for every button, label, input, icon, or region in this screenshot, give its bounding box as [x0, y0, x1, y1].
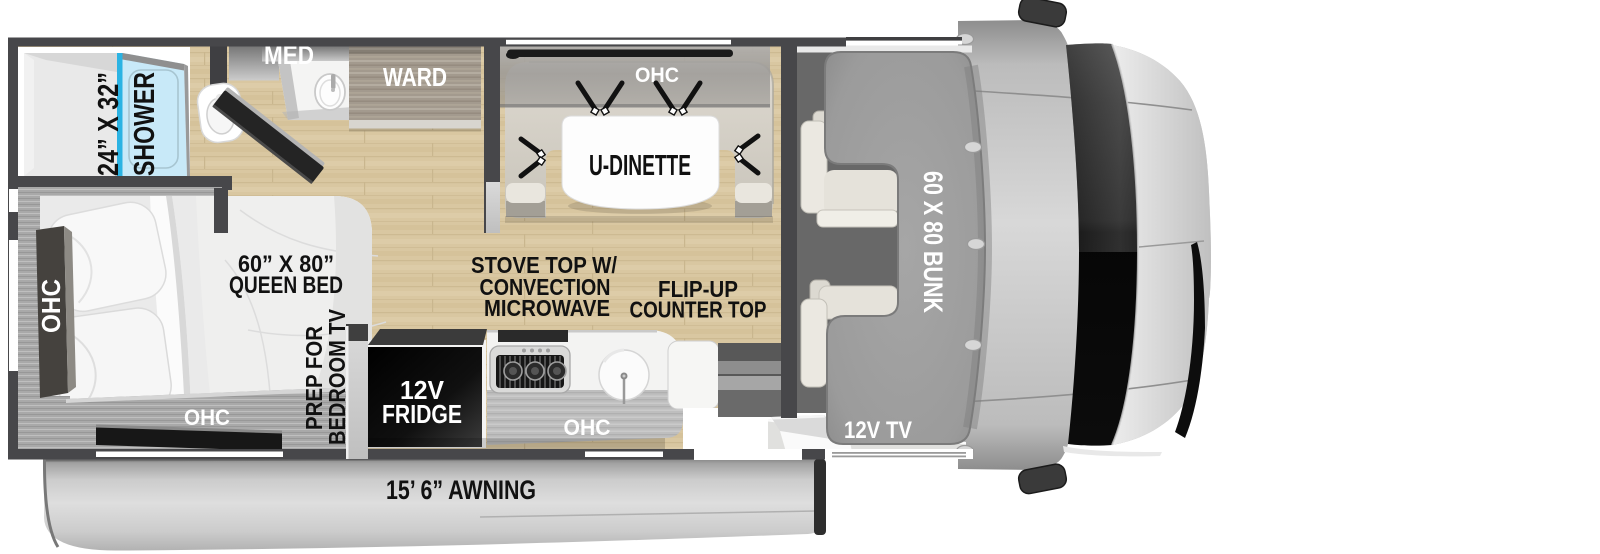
svg-text:COUNTER TOP: COUNTER TOP [630, 297, 767, 323]
svg-text:BEDROOM TV: BEDROOM TV [324, 308, 350, 445]
svg-text:MICROWAVE: MICROWAVE [484, 295, 610, 321]
svg-text:QUEEN BED: QUEEN BED [229, 272, 343, 299]
svg-text:12V TV: 12V TV [844, 417, 912, 444]
svg-text:15’ 6” AWNING: 15’ 6” AWNING [386, 475, 536, 505]
svg-text:24” X 32”: 24” X 32” [93, 72, 125, 176]
svg-text:SHOWER: SHOWER [129, 72, 161, 176]
svg-text:U-DINETTE: U-DINETTE [589, 150, 691, 182]
svg-text:OHC: OHC [184, 405, 230, 430]
svg-text:WARD: WARD [383, 62, 447, 92]
svg-text:FRIDGE: FRIDGE [382, 399, 462, 429]
svg-text:OHC: OHC [564, 415, 611, 440]
svg-text:OHC: OHC [36, 279, 66, 333]
svg-text:60 X 80 BUNK: 60 X 80 BUNK [918, 171, 948, 313]
